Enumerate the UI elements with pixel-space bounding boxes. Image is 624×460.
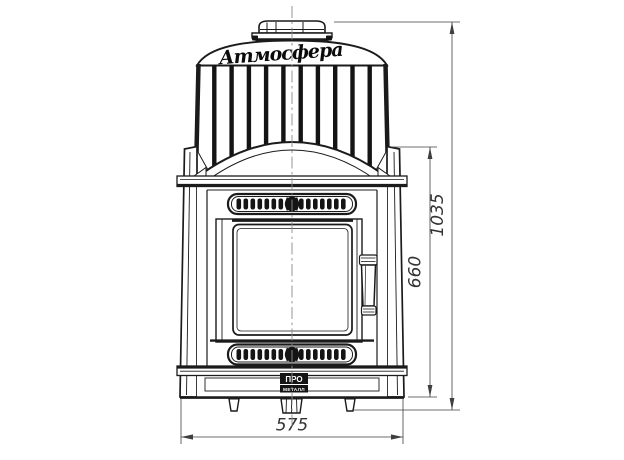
- badge-top-label: ПРО: [285, 375, 302, 384]
- dim-overall-height-value: 1035: [428, 193, 448, 236]
- stove-front-view-svg: Атмосфера: [0, 0, 624, 460]
- brand-badge: ПРО МЕТАЛЛ: [280, 373, 308, 393]
- badge-bottom-label: МЕТАЛЛ: [283, 387, 305, 393]
- foot-center: [281, 399, 302, 413]
- foot-left: [229, 399, 239, 411]
- dim-casing-height-value: 660: [406, 256, 426, 288]
- foot-right: [345, 399, 355, 411]
- stove-technical-drawing: Атмосфера: [0, 0, 624, 460]
- door-handle: [360, 255, 378, 315]
